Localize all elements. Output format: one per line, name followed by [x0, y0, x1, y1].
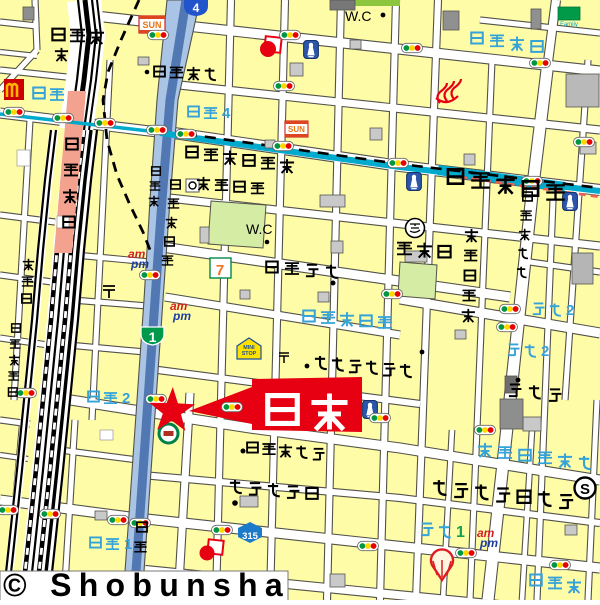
svg-text:W.C: W.C: [345, 8, 371, 24]
svg-text:2: 2: [122, 390, 130, 407]
svg-text:Family: Family: [560, 22, 578, 28]
svg-text:2: 2: [566, 302, 574, 319]
svg-text:2: 2: [541, 343, 549, 360]
svg-text:STOP: STOP: [242, 351, 257, 357]
svg-text:4: 4: [222, 105, 231, 122]
svg-text:W.C: W.C: [246, 221, 272, 237]
svg-text:© Shobunsha: © Shobunsha: [3, 567, 290, 600]
svg-text:1: 1: [124, 536, 132, 553]
svg-text:pm: pm: [172, 309, 191, 323]
svg-text:SUN: SUN: [288, 125, 305, 134]
svg-text:4: 4: [193, 1, 200, 15]
svg-text:7: 7: [216, 262, 224, 279]
svg-text:S: S: [580, 481, 590, 498]
svg-text:315: 315: [242, 531, 259, 542]
svg-text:pm: pm: [130, 257, 149, 271]
svg-text:1: 1: [456, 524, 465, 541]
svg-text:pm: pm: [479, 536, 498, 550]
svg-text:SUN: SUN: [142, 20, 161, 30]
svg-text:1: 1: [149, 329, 157, 345]
